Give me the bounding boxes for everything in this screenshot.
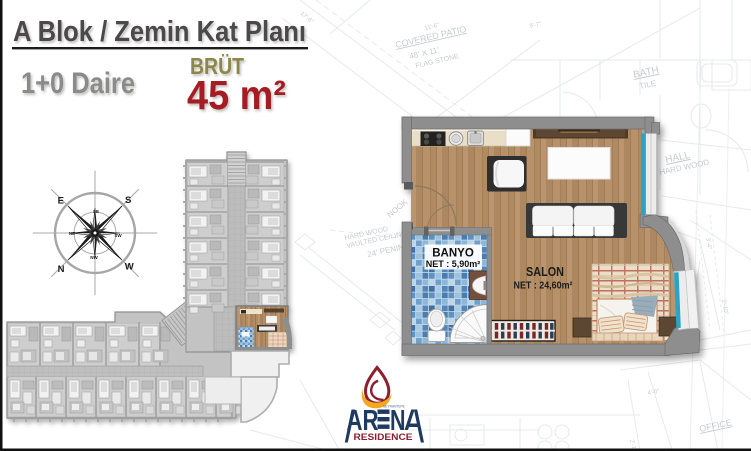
- svg-text:W: W: [125, 262, 134, 273]
- svg-text:RESIDENCE: RESIDENCE: [354, 432, 414, 443]
- svg-text:45 m²: 45 m²: [187, 72, 286, 118]
- svg-text:NW: NW: [90, 255, 98, 260]
- svg-text:NE: NE: [69, 231, 75, 236]
- svg-text:SALON: SALON: [526, 264, 564, 279]
- svg-text:S: S: [125, 195, 131, 206]
- svg-text:A Blok / Zemin Kat Planı: A Blok / Zemin Kat Planı: [13, 16, 306, 48]
- svg-text:NET : 5,90m²: NET : 5,90m²: [426, 259, 481, 269]
- svg-text:N: N: [58, 264, 65, 275]
- svg-text:NET : 24,60m²: NET : 24,60m²: [514, 280, 573, 292]
- svg-text:BANYO: BANYO: [432, 248, 474, 260]
- svg-text:E: E: [58, 195, 64, 206]
- svg-text:SW: SW: [114, 233, 122, 238]
- svg-text:1+0 Daire: 1+0 Daire: [21, 67, 135, 100]
- svg-text:SE: SE: [93, 209, 99, 214]
